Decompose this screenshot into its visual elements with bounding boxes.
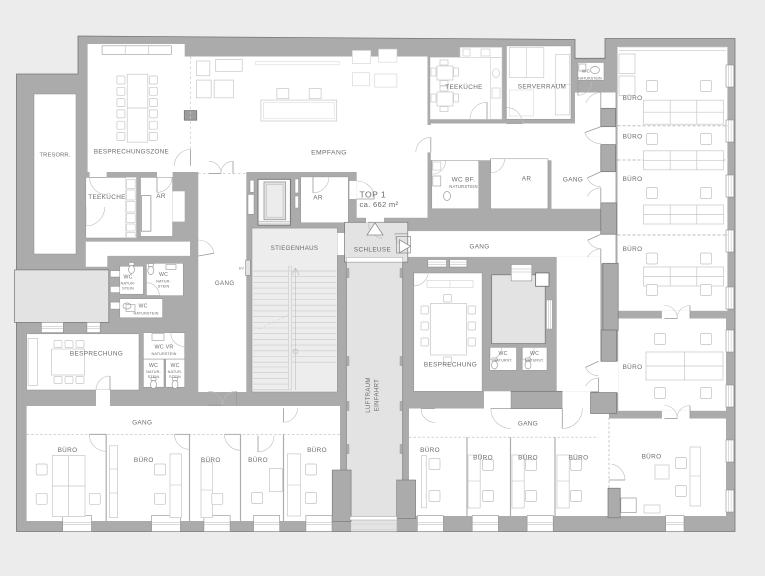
- svg-text:WC: WC: [149, 363, 158, 369]
- svg-text:STEIN: STEIN: [169, 375, 181, 379]
- svg-text:BÜRO: BÜRO: [307, 446, 327, 454]
- svg-text:NATURSTEIN: NATURSTEIN: [152, 352, 177, 356]
- svg-text:EV: EV: [239, 267, 244, 271]
- svg-text:BÜRO: BÜRO: [623, 175, 643, 183]
- svg-text:TRESORR.: TRESORR.: [40, 153, 71, 159]
- svg-text:BÜRO: BÜRO: [58, 446, 78, 454]
- svg-text:TOP 1: TOP 1: [360, 189, 387, 199]
- svg-text:AR: AR: [522, 176, 532, 183]
- svg-text:WC: WC: [123, 274, 132, 280]
- svg-text:NATURST.: NATURST.: [525, 359, 544, 363]
- svg-text:NATUR-: NATUR-: [156, 280, 171, 284]
- svg-text:EMPFANG: EMPFANG: [311, 150, 347, 157]
- svg-text:NATUR-: NATUR-: [168, 370, 183, 374]
- svg-text:GANG: GANG: [469, 244, 489, 251]
- svg-text:GANG: GANG: [518, 421, 538, 428]
- svg-text:GANG: GANG: [563, 176, 583, 183]
- svg-text:NATUR-: NATUR-: [146, 370, 161, 374]
- svg-text:NATURSTEIN: NATURSTEIN: [134, 312, 159, 316]
- svg-text:BÜRO: BÜRO: [569, 454, 589, 462]
- svg-text:BÜRO: BÜRO: [473, 454, 493, 462]
- svg-text:WC VR: WC VR: [155, 345, 174, 351]
- svg-text:BÜRO: BÜRO: [623, 132, 643, 140]
- svg-text:NATURSTEIN: NATURSTEIN: [449, 184, 477, 189]
- svg-text:BÜRO: BÜRO: [623, 245, 643, 253]
- svg-text:WC: WC: [530, 351, 539, 357]
- svg-text:BÜRO: BÜRO: [518, 454, 538, 462]
- svg-text:NATURSTEIN: NATURSTEIN: [578, 77, 602, 81]
- svg-text:ca. 662 m²: ca. 662 m²: [360, 200, 399, 209]
- svg-text:STEIN: STEIN: [122, 287, 134, 291]
- svg-text:TEEKÜCHE: TEEKÜCHE: [445, 83, 483, 91]
- svg-text:GANG: GANG: [215, 280, 235, 287]
- svg-text:BÜRO: BÜRO: [623, 363, 643, 371]
- svg-text:BESPRECHUNG: BESPRECHUNG: [424, 362, 477, 369]
- svg-text:GANG: GANG: [132, 420, 152, 427]
- svg-text:SCHLEUSE: SCHLEUSE: [354, 246, 391, 253]
- svg-text:BESPRECHUNG: BESPRECHUNG: [70, 351, 123, 358]
- svg-text:STEIN: STEIN: [158, 285, 170, 289]
- svg-text:STEIN: STEIN: [148, 375, 160, 379]
- svg-text:STIEGENHAUS: STIEGENHAUS: [271, 245, 319, 252]
- svg-text:WC BF.: WC BF.: [452, 176, 476, 183]
- svg-text:BÜRO: BÜRO: [134, 456, 154, 464]
- svg-text:BÜRO: BÜRO: [420, 446, 440, 454]
- svg-text:WC: WC: [138, 304, 147, 310]
- svg-text:BÜRO: BÜRO: [201, 456, 221, 464]
- svg-text:SERVERRAUM: SERVERRAUM: [518, 84, 566, 91]
- svg-text:EINFAHRT: EINFAHRT: [375, 379, 381, 411]
- svg-text:BESPRECHUNGSZONE: BESPRECHUNGSZONE: [94, 149, 169, 156]
- svg-text:AR: AR: [313, 195, 323, 202]
- svg-text:TEEKÜCHE: TEEKÜCHE: [88, 193, 126, 201]
- svg-text:BÜRO: BÜRO: [642, 453, 662, 461]
- svg-text:LUFTRAUM: LUFTRAUM: [366, 377, 372, 412]
- svg-text:BÜRO: BÜRO: [623, 94, 643, 102]
- svg-text:WC: WC: [498, 351, 507, 357]
- svg-text:BÜRO: BÜRO: [248, 456, 268, 464]
- svg-text:WC: WC: [170, 363, 179, 369]
- svg-text:WC: WC: [159, 272, 168, 278]
- svg-text:NATUR-: NATUR-: [121, 282, 136, 286]
- svg-text:AR: AR: [156, 193, 166, 200]
- svg-text:WC: WC: [582, 69, 591, 75]
- svg-text:NATURST.: NATURST.: [493, 359, 512, 363]
